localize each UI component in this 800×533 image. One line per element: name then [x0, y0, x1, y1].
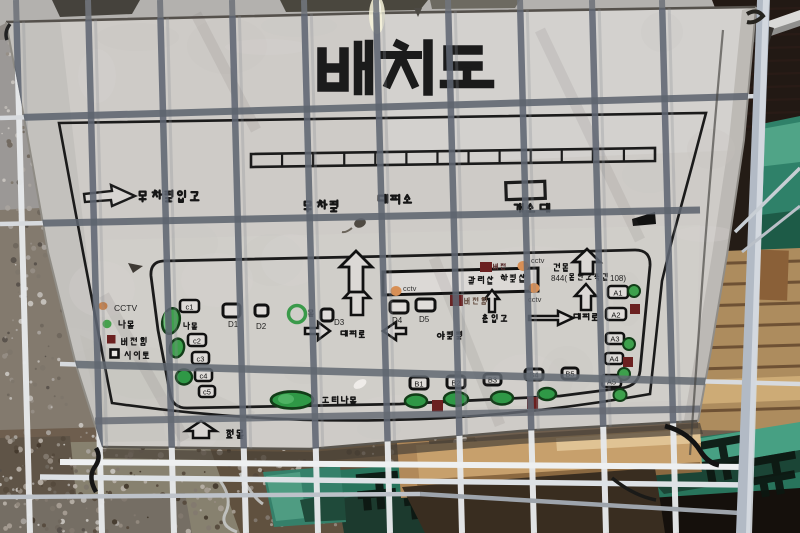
svg-text:A3: A3 [610, 335, 619, 344]
svg-text:D4: D4 [392, 316, 403, 325]
svg-text:B1: B1 [414, 380, 423, 389]
svg-text:c3: c3 [197, 355, 205, 364]
svg-text:cctv: cctv [403, 284, 417, 293]
svg-text:D3: D3 [334, 318, 345, 327]
svg-text:D2: D2 [256, 322, 267, 331]
svg-text:A2: A2 [611, 311, 620, 320]
svg-text:c1: c1 [186, 303, 194, 312]
svg-text:108): 108) [610, 274, 626, 283]
svg-text:c5: c5 [203, 388, 211, 397]
svg-text:c4: c4 [200, 372, 208, 381]
svg-text:D1: D1 [228, 320, 239, 329]
svg-text:A1: A1 [613, 289, 622, 298]
svg-text:D5: D5 [419, 315, 430, 324]
svg-text:c2: c2 [193, 337, 201, 346]
svg-text:A4: A4 [609, 355, 618, 364]
svg-text:844(: 844( [551, 274, 567, 283]
